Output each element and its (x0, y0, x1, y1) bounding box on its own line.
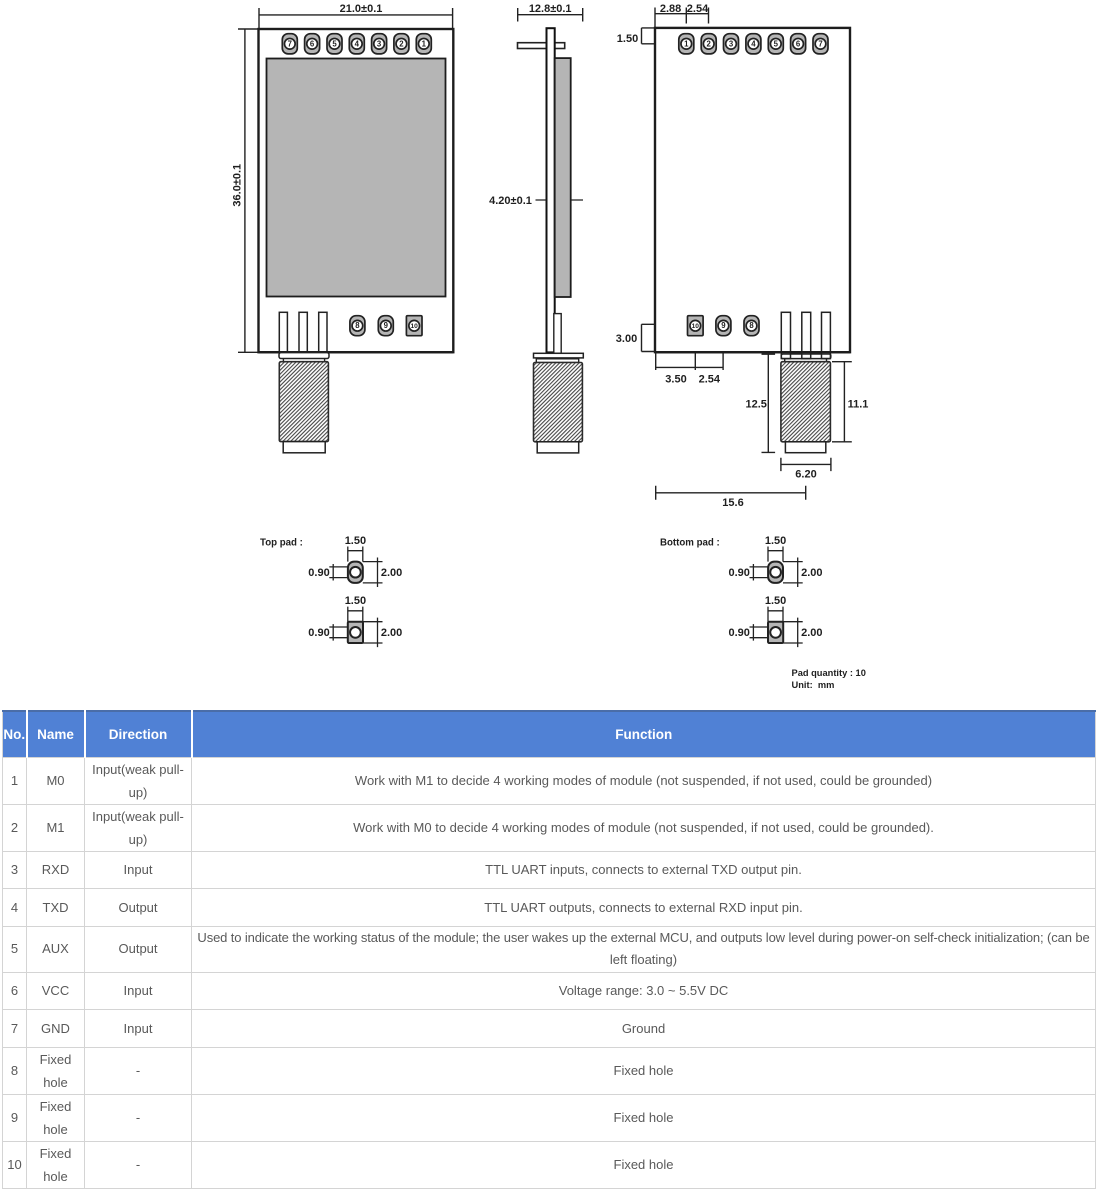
svg-text:10: 10 (692, 323, 700, 330)
svg-text:Unit: mm: Unit: mm (792, 680, 835, 690)
svg-text:15.6: 15.6 (722, 497, 743, 509)
svg-text:2.00: 2.00 (381, 627, 402, 639)
svg-text:10: 10 (411, 323, 419, 330)
svg-text:9: 9 (384, 321, 389, 330)
svg-text:36.0±0.1: 36.0±0.1 (232, 164, 244, 207)
svg-text:Bottom pad :: Bottom pad : (660, 537, 720, 548)
svg-text:5: 5 (332, 40, 337, 49)
svg-text:0.90: 0.90 (308, 627, 329, 639)
svg-text:3: 3 (377, 40, 382, 49)
svg-text:3.50: 3.50 (665, 373, 686, 385)
svg-text:4.20±0.1: 4.20±0.1 (489, 195, 532, 207)
svg-text:Top pad :: Top pad : (260, 537, 303, 548)
svg-text:2.88: 2.88 (660, 3, 681, 15)
svg-text:12.8±0.1: 12.8±0.1 (529, 3, 572, 15)
svg-text:2: 2 (399, 40, 404, 49)
svg-text:8: 8 (749, 321, 754, 330)
svg-text:0.90: 0.90 (308, 567, 329, 579)
svg-text:9: 9 (721, 321, 726, 330)
svg-text:5: 5 (774, 40, 779, 49)
svg-text:3.00: 3.00 (616, 333, 637, 345)
svg-text:6: 6 (310, 40, 315, 49)
svg-text:0.90: 0.90 (728, 567, 749, 579)
svg-text:2.00: 2.00 (801, 627, 822, 639)
svg-text:1.50: 1.50 (345, 595, 366, 607)
svg-text:7: 7 (818, 40, 822, 49)
svg-text:2.00: 2.00 (381, 567, 402, 579)
svg-text:2.54: 2.54 (687, 3, 709, 15)
svg-text:2.00: 2.00 (801, 567, 822, 579)
svg-text:6: 6 (796, 40, 801, 49)
svg-text:4: 4 (751, 40, 756, 49)
svg-text:6.20: 6.20 (795, 468, 816, 480)
svg-text:4: 4 (355, 40, 360, 49)
svg-text:1.50: 1.50 (765, 595, 786, 607)
svg-text:1.50: 1.50 (345, 535, 366, 547)
svg-text:1: 1 (422, 40, 427, 49)
svg-text:3: 3 (729, 40, 734, 49)
svg-text:1: 1 (684, 40, 689, 49)
svg-text:12.5: 12.5 (745, 398, 766, 410)
svg-text:2.54: 2.54 (699, 373, 721, 385)
svg-text:11.1: 11.1 (848, 398, 869, 410)
svg-text:1.50: 1.50 (765, 535, 786, 547)
svg-text:1.50: 1.50 (617, 33, 638, 45)
svg-text:Pad quantity : 10: Pad quantity : 10 (792, 668, 866, 678)
svg-text:8: 8 (355, 321, 360, 330)
svg-text:21.0±0.1: 21.0±0.1 (340, 3, 383, 15)
svg-text:0.90: 0.90 (728, 627, 749, 639)
svg-text:2: 2 (707, 40, 712, 49)
svg-text:7: 7 (288, 40, 292, 49)
